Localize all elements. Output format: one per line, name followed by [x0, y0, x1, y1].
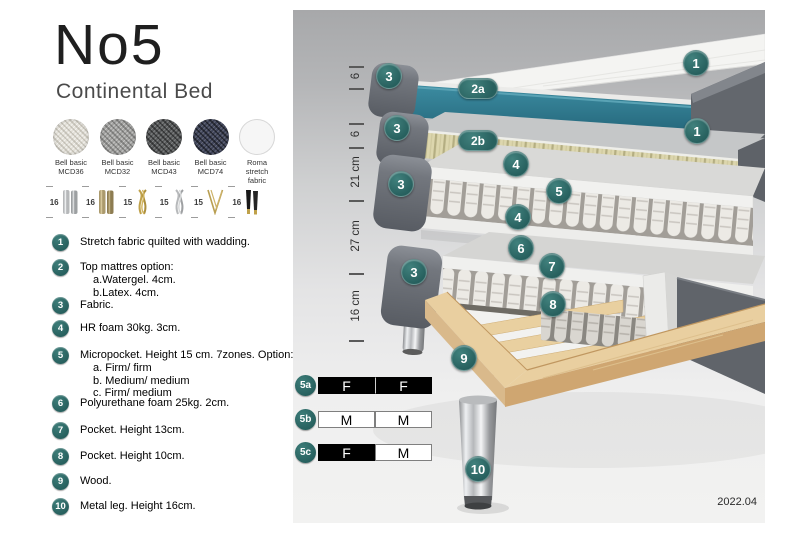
measure-tick	[349, 340, 364, 342]
fabric-code: MCD43	[151, 167, 176, 176]
leg-black-gold-icon	[244, 189, 259, 215]
fabric-texture-icon	[239, 119, 275, 155]
fabric-swatch-mcd43: Bell basicMCD43	[143, 119, 185, 185]
list-badge: 10	[52, 498, 69, 515]
list-item: 1 Stretch fabric quilted with wadding.	[52, 236, 304, 251]
firmness-cell: F	[318, 377, 375, 394]
measure-label-box: 27 cm	[350, 208, 362, 264]
leg-option-3: 15	[119, 186, 155, 218]
list-text: Stretch fabric quilted with wadding.	[80, 236, 250, 249]
list-text: HR foam 30kg. 3cm.	[80, 322, 180, 335]
bed-diagram-panel: 6 6 21 cm 27 cm 16 cm 3 2a 1 3 2b 1 4 5 …	[293, 10, 765, 523]
firmness-cells: M M	[318, 411, 432, 428]
fabric-code: MCD74	[198, 167, 223, 176]
fabric-swatch-mcd74: Bell basicMCD74	[190, 119, 232, 185]
diagram-badge-1b: 1	[684, 118, 710, 144]
list-badge: 1	[52, 234, 69, 251]
leg-option-4: 15	[155, 186, 191, 218]
list-item: 8 Pocket. Height 10cm.	[52, 450, 304, 465]
leg-bronze-cylinder-icon	[98, 189, 115, 215]
fabric-swatch-mcd32: Bell basicMCD32	[97, 119, 139, 185]
list-item: 10 Metal leg. Height 16cm.	[52, 500, 304, 515]
list-text: Metal leg. Height 16cm.	[80, 500, 196, 513]
list-text: Micropocket. Height 15 cm. 7zones. Optio…	[80, 349, 293, 400]
measure-label-legs: 16 cm	[350, 278, 362, 334]
measure-tick	[349, 273, 364, 275]
diagram-badge-9: 9	[451, 345, 477, 371]
list-item: 3 Fabric.	[52, 299, 304, 314]
list-text: Fabric.	[80, 299, 114, 312]
fabric-name: Roma	[247, 158, 267, 167]
leg-height: 15	[160, 198, 169, 207]
list-item: 5 Micropocket. Height 15 cm. 7zones. Opt…	[52, 349, 304, 400]
list-badge: 2	[52, 259, 69, 276]
list-badge: 3	[52, 297, 69, 314]
diagram-badge-3c: 3	[388, 171, 414, 197]
measure-label-middle: 21 cm	[350, 144, 362, 200]
diagram-badge-10: 10	[465, 456, 491, 482]
leg-height: 16	[86, 198, 95, 207]
list-item: 9 Wood.	[52, 475, 304, 490]
list-item: 7 Pocket. Height 13cm.	[52, 424, 304, 439]
diagram-badge-3b: 3	[384, 115, 410, 141]
leg-option-5: 15	[191, 186, 227, 218]
list-text: Pocket. Height 13cm.	[80, 424, 185, 437]
leg-gold-twist-icon	[135, 189, 150, 215]
firmness-cell: F	[318, 444, 375, 461]
leg-height: 15	[123, 198, 132, 207]
fabric-name: Bell basic	[55, 158, 87, 167]
fabric-texture-icon	[100, 119, 136, 155]
fabric-name: Bell basic	[148, 158, 180, 167]
list-text: Top mattres option: a.Watergel. 4cm. b.L…	[80, 261, 176, 299]
fabric-swatch-mcd36: Bell basicMCD36	[50, 119, 92, 185]
diagram-badge-2b: 2b	[458, 130, 498, 151]
fabric-texture-icon	[146, 119, 182, 155]
leg-height: 15	[194, 198, 203, 207]
fabric-code: stretch fabric	[246, 167, 269, 185]
firmness-cell: M	[318, 411, 375, 428]
list-text: Polyurethane foam 25kg. 2cm.	[80, 397, 229, 410]
fabric-code: MCD32	[105, 167, 130, 176]
leg-height: 16	[232, 198, 241, 207]
fabric-name: Bell basic	[194, 158, 226, 167]
measure-tick	[349, 200, 364, 202]
firmness-cells: F M	[318, 444, 432, 461]
diagram-badge-2a: 2a	[458, 78, 498, 99]
list-badge: 8	[52, 448, 69, 465]
leg-option-1: 16	[46, 186, 82, 218]
list-badge: 6	[52, 395, 69, 412]
leg-options: 16 16 15 15 15 1	[46, 186, 264, 218]
diagram-badge-1a: 1	[683, 50, 709, 76]
diagram-badge-4b: 4	[505, 204, 531, 230]
firmness-row-5b: 5b M M	[295, 409, 432, 430]
leg-silver-twist-icon	[172, 189, 187, 215]
list-item: 2 Top mattres option: a.Watergel. 4cm. b…	[52, 261, 304, 299]
list-badge: 7	[52, 422, 69, 439]
list-badge: 9	[52, 473, 69, 490]
list-text: Wood.	[80, 475, 112, 488]
version-label: 2022.04	[717, 496, 757, 508]
leg-chrome-cylinder-icon	[62, 189, 79, 215]
firmness-badge-5c: 5c	[295, 442, 316, 463]
fabric-texture-icon	[53, 119, 89, 155]
list-badge: 4	[52, 320, 69, 337]
firmness-cell: F	[375, 377, 432, 394]
diagram-badge-3a: 3	[376, 63, 402, 89]
firmness-cell: M	[375, 444, 432, 461]
fabric-texture-icon	[193, 119, 229, 155]
firmness-badge-5a: 5a	[295, 375, 316, 396]
leg-hairpin-icon	[206, 189, 225, 215]
fabric-name: Bell basic	[101, 158, 133, 167]
fabric-swatch-roma: Romastretch fabric	[236, 119, 278, 185]
firmness-badge-5b: 5b	[295, 409, 316, 430]
list-text: Pocket. Height 10cm.	[80, 450, 185, 463]
firmness-cell: M	[375, 411, 432, 428]
diagram-badge-4a: 4	[503, 151, 529, 177]
firmness-row-5a: 5a F F	[295, 375, 432, 396]
list-item: 4 HR foam 30kg. 3cm.	[52, 322, 304, 337]
diagram-badge-3d: 3	[401, 259, 427, 285]
list-badge: 5	[52, 347, 69, 364]
diagram-badge-5: 5	[546, 178, 572, 204]
diagram-badge-7: 7	[539, 253, 565, 279]
page-subtitle: Continental Bed	[56, 80, 213, 104]
leg-option-2: 16	[82, 186, 118, 218]
diagram-badge-6: 6	[508, 235, 534, 261]
diagram-badge-8: 8	[540, 291, 566, 317]
measure-label-top-mattress: 6	[350, 48, 362, 104]
fabric-code: MCD36	[58, 167, 83, 176]
firmness-cells: F F	[318, 377, 432, 394]
list-item: 6 Polyurethane foam 25kg. 2cm.	[52, 397, 304, 412]
leg-height: 16	[50, 198, 59, 207]
fabric-swatches: Bell basicMCD36 Bell basicMCD32 Bell bas…	[50, 119, 278, 185]
firmness-row-5c: 5c F M	[295, 442, 432, 463]
page-title: No5	[54, 12, 165, 78]
leg-option-6: 16	[228, 186, 264, 218]
